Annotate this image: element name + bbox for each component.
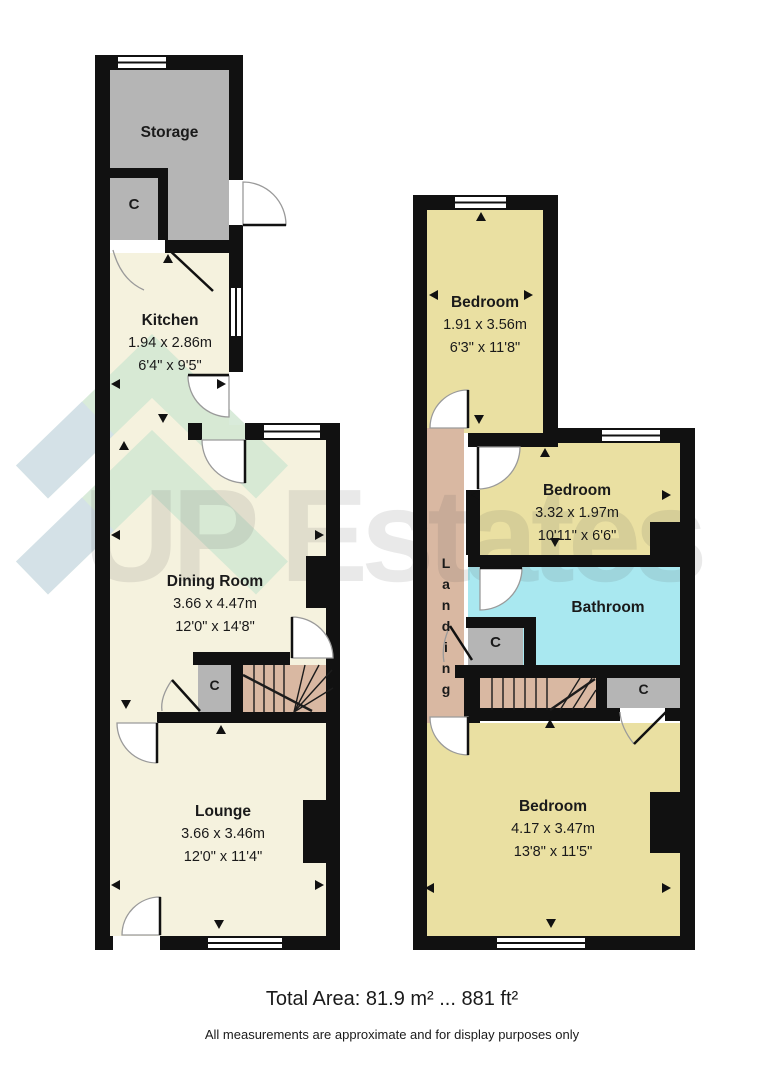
dimension-arrow-icon [163, 254, 173, 263]
door-swing [162, 680, 172, 711]
door-swing [113, 250, 144, 290]
disclaimer-text: All measurements are approximate and for… [0, 1027, 784, 1042]
door-swing [620, 712, 634, 744]
closet-label: C [110, 196, 158, 213]
room-label-dining: Dining Room 3.66 x 4.47m 12'0" x 14'8" [115, 571, 315, 639]
dimension-arrow-icon [111, 379, 120, 389]
door-leaf [634, 710, 668, 744]
dimension-arrow-icon [315, 880, 324, 890]
room-label-bedroom-main: Bedroom 4.17 x 3.47m 13'8" x 11'5" [453, 796, 653, 864]
dimension-arrow-icon [119, 441, 129, 450]
door-swing [430, 717, 468, 755]
dimension-arrow-icon [214, 920, 224, 929]
dimension-arrow-icon [111, 880, 120, 890]
room-label-landing: Landing [430, 538, 454, 718]
dimension-arrow-icon [474, 415, 484, 424]
stair-treads [492, 678, 596, 710]
dimension-arrow-icon [476, 212, 486, 221]
dimension-arrow-icon [216, 725, 226, 734]
dimension-arrow-icon [425, 883, 434, 893]
closet-label: C [198, 677, 231, 693]
door-swing [122, 897, 160, 935]
dimension-arrow-icon [546, 919, 556, 928]
dimension-arrow-icon [540, 448, 550, 457]
dimension-arrow-icon [111, 530, 120, 540]
total-area-text: Total Area: 81.9 m² ... 881 ft² [0, 988, 784, 1011]
dimension-arrow-icon [662, 883, 671, 893]
dimension-arrow-icon [158, 414, 168, 423]
room-label-bathroom: Bathroom [508, 597, 708, 619]
room-label-bedroom-middle: Bedroom 3.32 x 1.97m 10'11" x 6'6" [477, 480, 677, 548]
room-label-kitchen: Kitchen 1.94 x 2.86m 6'4" x 9'5" [105, 310, 235, 378]
closet-label: C [468, 634, 523, 651]
dimension-arrow-icon [121, 700, 131, 709]
door-swing [243, 182, 286, 225]
stair-treads [243, 665, 333, 712]
door-leaf [172, 680, 200, 711]
dimension-arrow-icon [545, 719, 555, 728]
room-label-lounge: Lounge 3.66 x 3.46m 12'0" x 11'4" [123, 801, 323, 869]
dimension-arrow-icon [217, 379, 226, 389]
floorplan-canvas: UP Estates [0, 0, 784, 1080]
closet-label: C [605, 681, 682, 697]
door-swing [202, 440, 245, 483]
door-leaf [166, 247, 213, 291]
room-label-storage: Storage [110, 122, 229, 144]
dimension-arrow-icon [315, 530, 324, 540]
door-swing [430, 390, 468, 428]
door-swing [117, 723, 157, 763]
room-label-bedroom-top: Bedroom 1.91 x 3.56m 6'3" x 11'8" [425, 292, 545, 360]
